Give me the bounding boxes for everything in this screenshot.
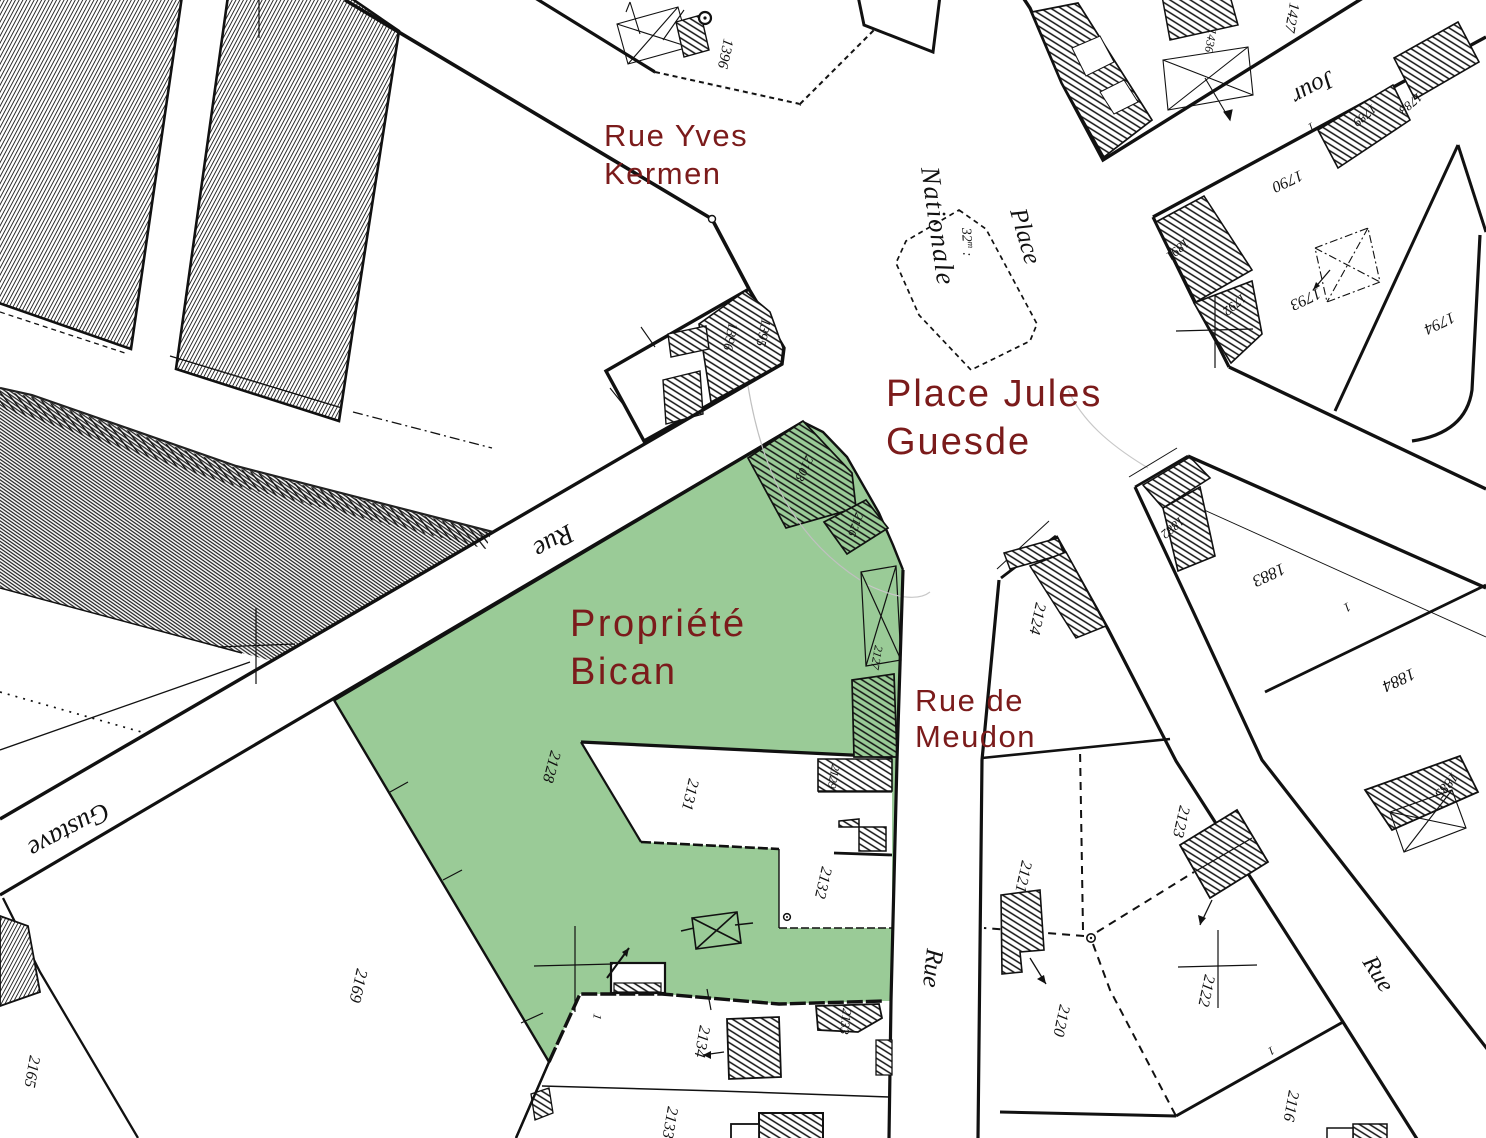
svg-text:Bican: Bican — [570, 651, 678, 693]
svg-text:Rue de: Rue de — [915, 683, 1024, 718]
svg-text:32m :: 32m : — [958, 226, 977, 257]
svg-text:Rue: Rue — [917, 946, 948, 988]
svg-text:Place Jules: Place Jules — [886, 373, 1102, 415]
svg-text:Guesde: Guesde — [886, 421, 1031, 463]
svg-text:Propriété: Propriété — [570, 603, 747, 645]
svg-text:Meudon: Meudon — [915, 719, 1036, 754]
svg-text:Kermen: Kermen — [604, 156, 722, 191]
svg-text:2133: 2133 — [837, 1008, 855, 1036]
svg-text:Rue Yves: Rue Yves — [604, 118, 748, 153]
